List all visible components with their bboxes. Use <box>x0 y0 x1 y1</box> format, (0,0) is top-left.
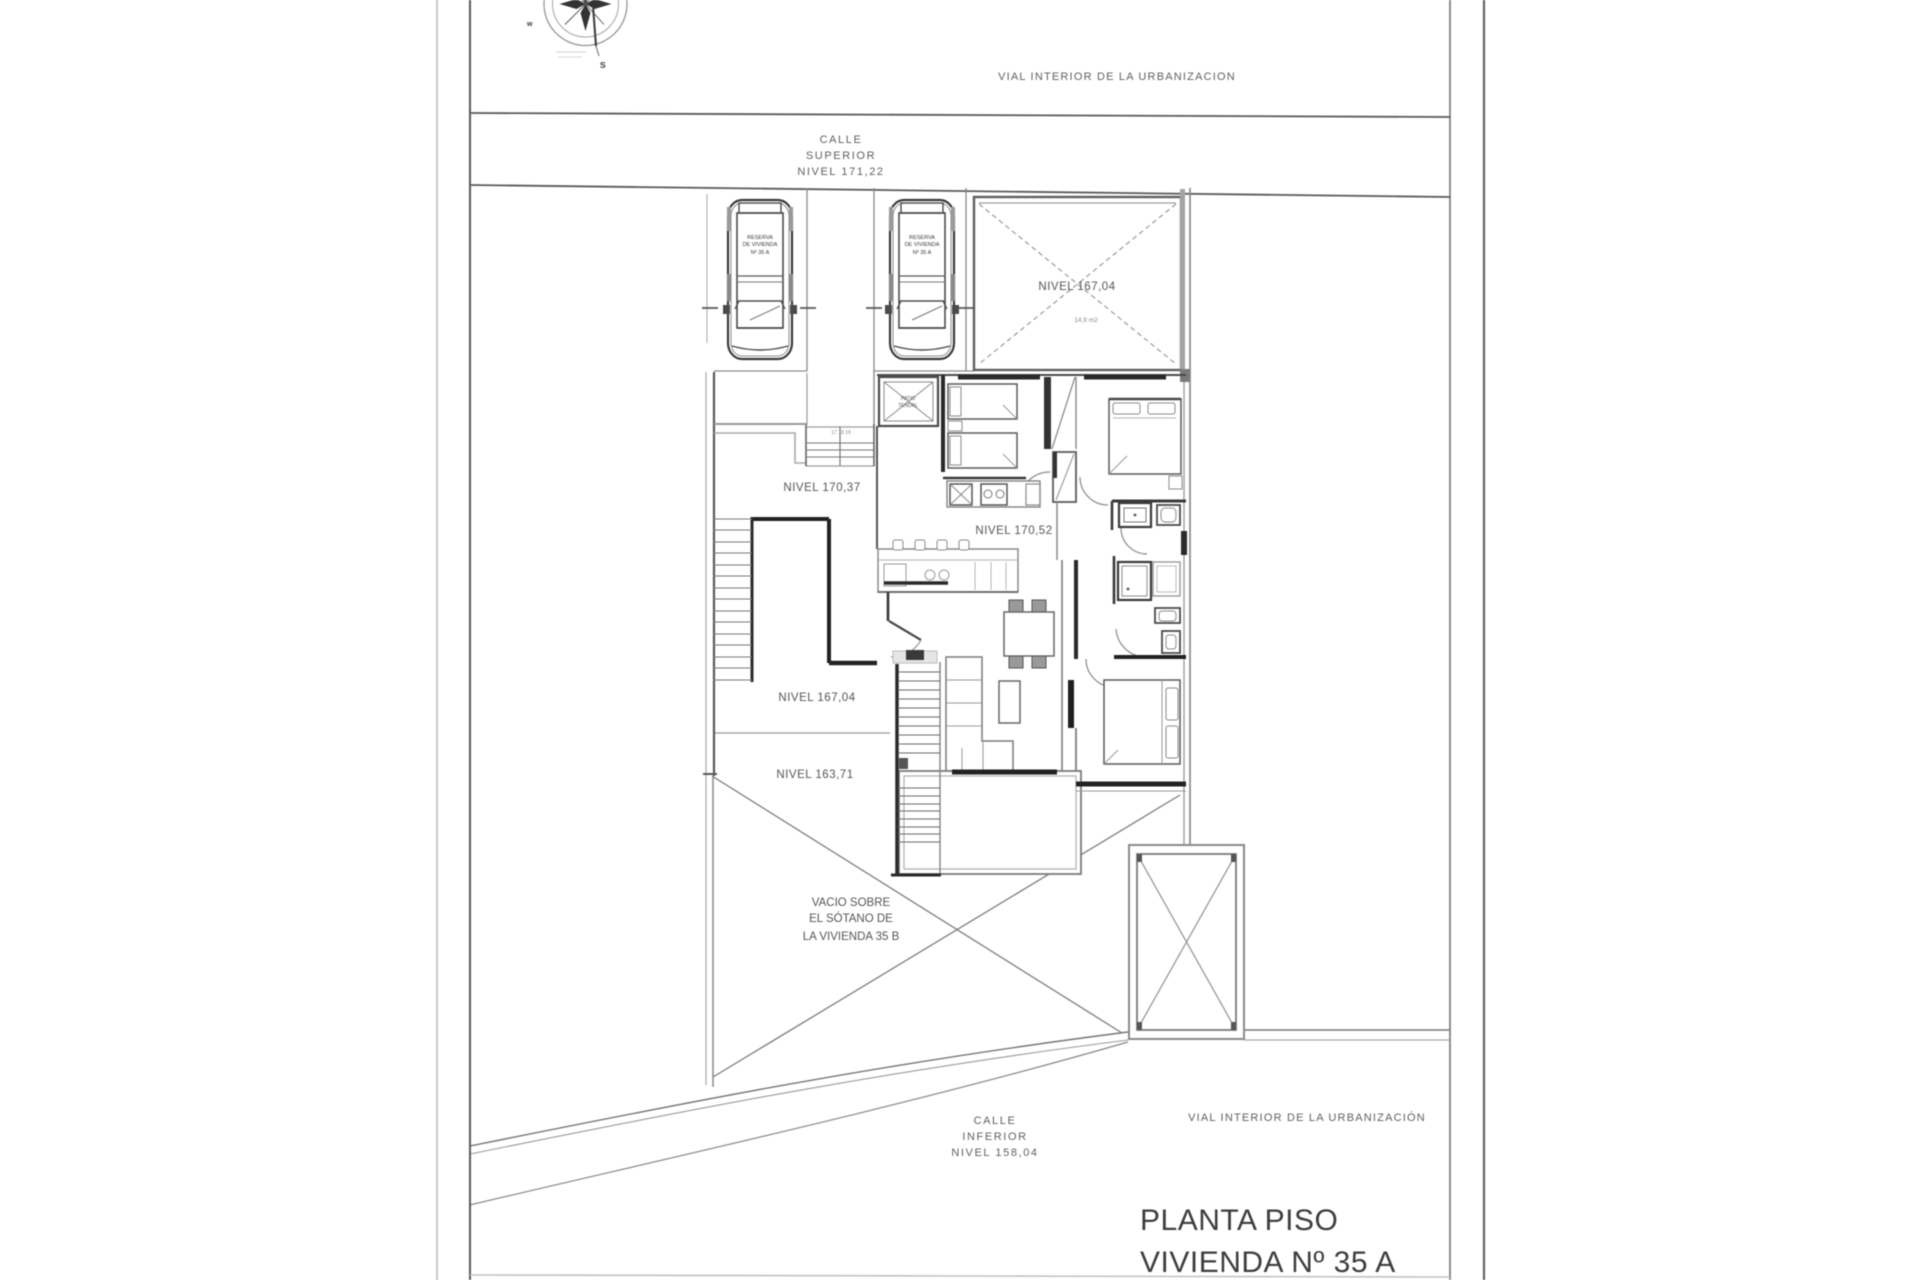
svg-text:NIVEL 158,04: NIVEL 158,04 <box>951 1147 1038 1159</box>
svg-text:VACIO SOBRE: VACIO SOBRE <box>812 897 891 909</box>
svg-text:DE VIVIENDA: DE VIVIENDA <box>905 242 940 248</box>
svg-text:NIVEL 167,04: NIVEL 167,04 <box>1038 281 1115 293</box>
svg-text:PLANTA PISO: PLANTA PISO <box>1140 1204 1338 1237</box>
svg-text:NIVEL 170,52: NIVEL 170,52 <box>975 525 1052 537</box>
svg-text:PATIO: PATIO <box>901 396 915 402</box>
svg-text:w: w <box>526 21 533 28</box>
svg-text:RESERVA: RESERVA <box>747 235 773 241</box>
svg-text:NIVEL 170,37: NIVEL 170,37 <box>783 482 860 494</box>
svg-text:DE VIVIENDA: DE VIVIENDA <box>743 242 778 248</box>
svg-text:EL SÓTANO DE: EL SÓTANO DE <box>809 912 893 925</box>
svg-text:VIAL INTERIOR DE LA URBANIZACI: VIAL INTERIOR DE LA URBANIZACION <box>998 71 1236 83</box>
svg-text:INFERIOR: INFERIOR <box>962 1131 1027 1143</box>
svg-text:VIAL INTERIOR DE LA URBANIZACI: VIAL INTERIOR DE LA URBANIZACIÓN <box>1188 1111 1426 1124</box>
svg-text:RESERVA: RESERVA <box>909 235 935 241</box>
svg-text:NIVEL 171,22: NIVEL 171,22 <box>797 166 884 178</box>
svg-text:LA VIVIENDA 35 B: LA VIVIENDA 35 B <box>803 931 900 943</box>
svg-text:CALLE: CALLE <box>820 134 863 146</box>
svg-text:TENDAL: TENDAL <box>898 403 918 409</box>
svg-text:17 18 19: 17 18 19 <box>831 430 851 436</box>
svg-text:VIVIENDA Nº 35 A: VIVIENDA Nº 35 A <box>1140 1246 1396 1279</box>
svg-text:SUPERIOR: SUPERIOR <box>806 150 876 162</box>
svg-text:Nº 35 A: Nº 35 A <box>751 249 770 256</box>
svg-text:Nº 35 A: Nº 35 A <box>913 249 932 256</box>
svg-text:NIVEL 167,04: NIVEL 167,04 <box>778 692 855 704</box>
svg-text:14,9 m2: 14,9 m2 <box>1074 317 1098 324</box>
svg-text:CALLE: CALLE <box>974 1115 1017 1127</box>
svg-text:NIVEL 163,71: NIVEL 163,71 <box>776 769 853 781</box>
svg-text:S: S <box>600 60 606 70</box>
